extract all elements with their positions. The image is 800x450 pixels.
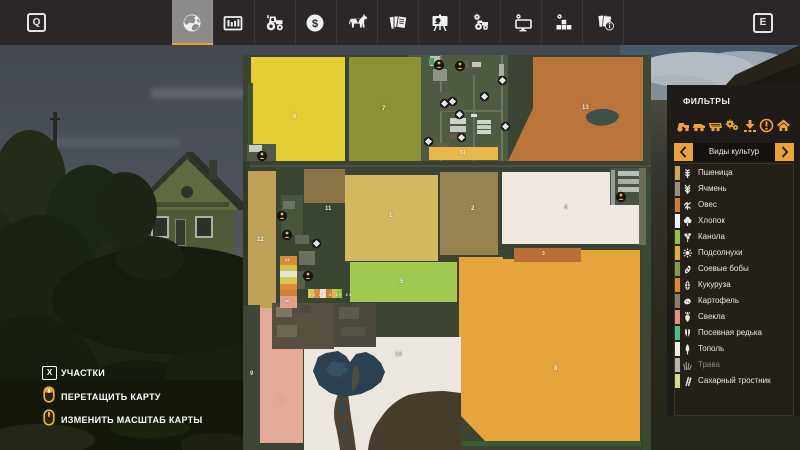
svg-text:$: $ xyxy=(312,18,318,30)
